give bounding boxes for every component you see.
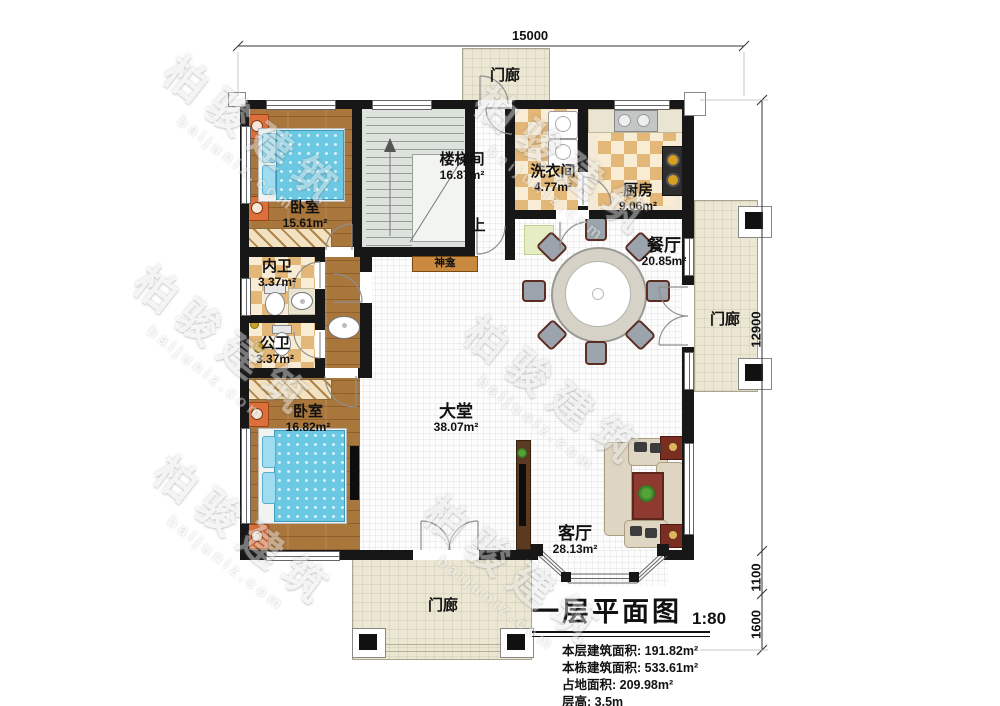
room-label-bedroom-1: 卧室 15.61m² [260,200,350,230]
room-label-dining: 餐厅 20.85m² [618,236,710,268]
stairs-up-label: 上 [468,214,488,235]
stairs-arrow [384,138,396,152]
title-underline [532,631,710,637]
dimension-right-upper: 12900 [749,300,764,360]
plan-scale: 1:80 [692,609,726,629]
room-label-hall: 大堂 38.07m² [406,402,506,434]
stat-row: 层高: 3.5m [562,694,762,706]
stat-row: 占地面积: 209.98m² [562,677,762,694]
stat-row: 本层建筑面积: 191.82m² [562,643,762,660]
shrine-cabinet: 神龛 [412,256,478,272]
room-label-staircase: 楼梯间 16.87m² [417,152,507,182]
title-block: 一层平面图 1:80 本层建筑面积: 191.82m² 本栋建筑面积: 533.… [532,590,762,706]
plan-linework [0,0,1000,706]
room-label-bedroom-2: 卧室 16.82m² [263,404,353,434]
porch-bottom-label: 门廊 [408,594,478,615]
door-arcs [294,76,688,550]
room-label-kitchen: 厨房 9.06m² [593,183,683,213]
stat-row: 本栋建筑面积: 533.61m² [562,660,762,677]
room-label-living: 客厅 28.13m² [530,524,620,556]
dimension-top: 15000 [512,28,548,43]
porch-top-label: 门廊 [470,64,540,85]
plan-title: 一层平面图 [532,590,682,629]
floor-plan-canvas: 卧室 15.61m² 楼梯间 16.87m² 洗衣间 4.77m² 厨房 9.0… [0,0,1000,706]
room-label-bath-ensuite: 内卫 3.37m² [232,259,322,289]
room-label-bath-public: 公卫 3.37m² [230,336,320,366]
room-label-laundry: 洗衣间 4.77m² [508,164,598,194]
